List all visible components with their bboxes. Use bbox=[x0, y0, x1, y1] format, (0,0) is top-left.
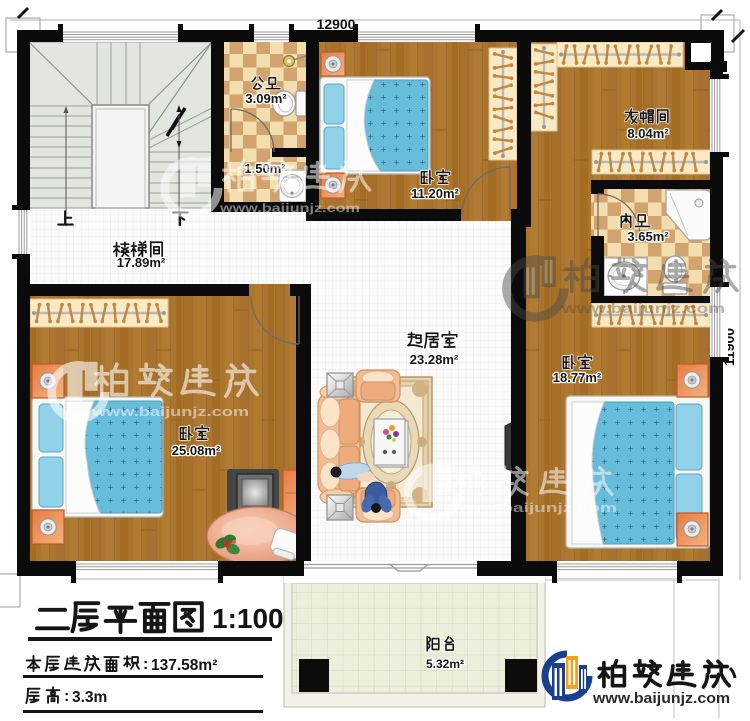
svg-text:1:100: 1:100 bbox=[212, 603, 284, 634]
svg-text::: : bbox=[64, 688, 69, 705]
svg-text:17.89m²: 17.89m² bbox=[117, 255, 166, 270]
svg-text:11.20m²: 11.20m² bbox=[411, 186, 459, 201]
svg-text:12900: 12900 bbox=[317, 16, 356, 32]
svg-text:25.08m²: 25.08m² bbox=[172, 443, 221, 458]
svg-text:3.65m²: 3.65m² bbox=[627, 229, 669, 244]
svg-text:23.28m²: 23.28m² bbox=[410, 352, 459, 367]
svg-text:3.09m²: 3.09m² bbox=[245, 91, 287, 106]
svg-text:18.77m²: 18.77m² bbox=[553, 370, 602, 385]
svg-text:www.baijunjz.com: www.baijunjz.com bbox=[592, 691, 730, 707]
svg-text:www.baijunjz.com: www.baijunjz.com bbox=[219, 201, 360, 215]
svg-text:137.58m²: 137.58m² bbox=[151, 657, 217, 674]
svg-text::: : bbox=[143, 656, 148, 673]
svg-text:www.baijunjz.com: www.baijunjz.com bbox=[561, 301, 725, 316]
svg-text:www.baijunjz.com: www.baijunjz.com bbox=[450, 501, 617, 515]
svg-text:3.3m: 3.3m bbox=[72, 689, 107, 706]
svg-text:www.baijunjz.com: www.baijunjz.com bbox=[91, 404, 249, 419]
svg-text:8.04m²: 8.04m² bbox=[627, 126, 669, 141]
svg-text:5.32m²: 5.32m² bbox=[426, 657, 464, 671]
